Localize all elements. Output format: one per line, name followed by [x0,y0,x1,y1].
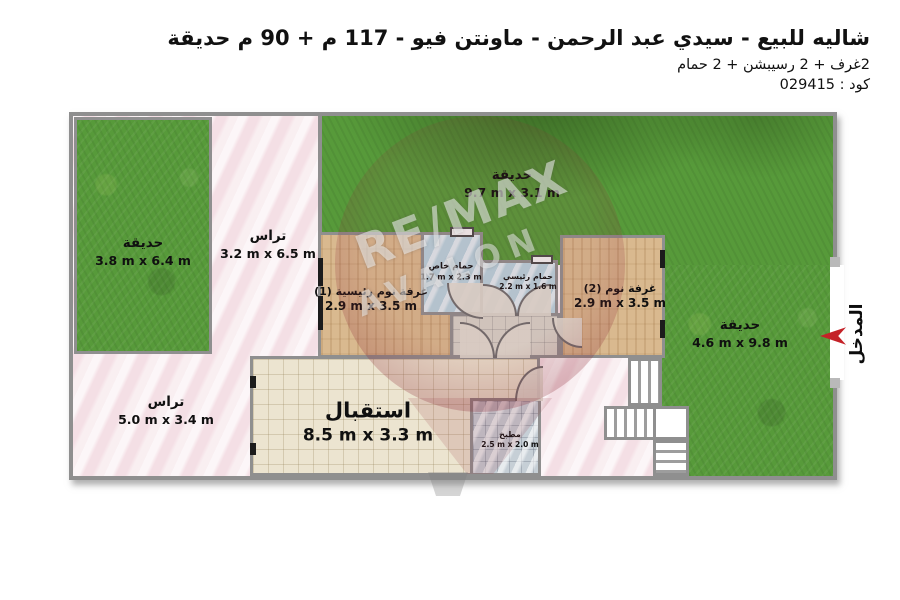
header: شاليه للبيع - سيدي عبد الرحمن - ماونتن ف… [167,26,870,93]
listing-subtitle: 2غرف + 2 رسيبشن + 2 حمام [167,57,870,73]
master-bedroom-label: غرفة نوم رئيسية (1)2.9 m x 3.5 m [314,285,428,315]
window-master-bedroom-1 [318,258,323,286]
bedroom-2-label: غرفة نوم (2)2.9 m x 3.5 m [574,282,666,312]
vent-main-bathroom [531,255,553,264]
entrance-opening-cap-top [830,257,840,267]
vent-private-bathroom [450,227,474,237]
garden-right-label: حديقة4.6 m x 9.8 m [692,317,788,351]
master-bedroom-nook [421,315,451,358]
window-reception-a [250,376,256,388]
entrance-opening-cap-bottom [830,378,840,388]
window-bedroom-2-a [660,250,665,268]
stairs-run-middle [604,406,656,440]
garden-left-label: حديقة3.8 m x 6.4 m [95,235,191,269]
kitchen-label: مطبخ2.5 m x 2.0 m [481,430,538,450]
private-bathroom-label: حمام خاص1.7 m x 2.3 m [420,261,481,282]
reception-label: استقبال8.5 m x 3.3 m [303,397,433,446]
floor-plan: حديقة3.8 m x 6.4 m حديقة9.7 m x 3.1 m حد… [69,112,837,480]
terrace-bottom-label: تراس5.0 m x 3.4 m [118,394,214,428]
floorplan-page: شاليه للبيع - سيدي عبد الرحمن - ماونتن ف… [0,0,900,600]
entrance-opening [830,265,844,380]
terrace-top-label: تراس3.2 m x 6.5 m [220,228,316,262]
stairs-run-upper [628,358,662,406]
window-reception-b [250,443,256,455]
main-bathroom-label: حمام رئيسي2.2 m x 1.6 m [499,272,556,292]
entrance-label: المدخل [847,279,873,389]
stairs-landing [653,406,689,440]
window-bedroom-2-b [660,320,665,338]
garden-top-label: حديقة9.7 m x 3.1 m [464,167,560,201]
stairs-run-lower [653,440,689,476]
listing-title: شاليه للبيع - سيدي عبد الرحمن - ماونتن ف… [167,26,870,51]
listing-code: كود : 029415 [167,77,870,93]
